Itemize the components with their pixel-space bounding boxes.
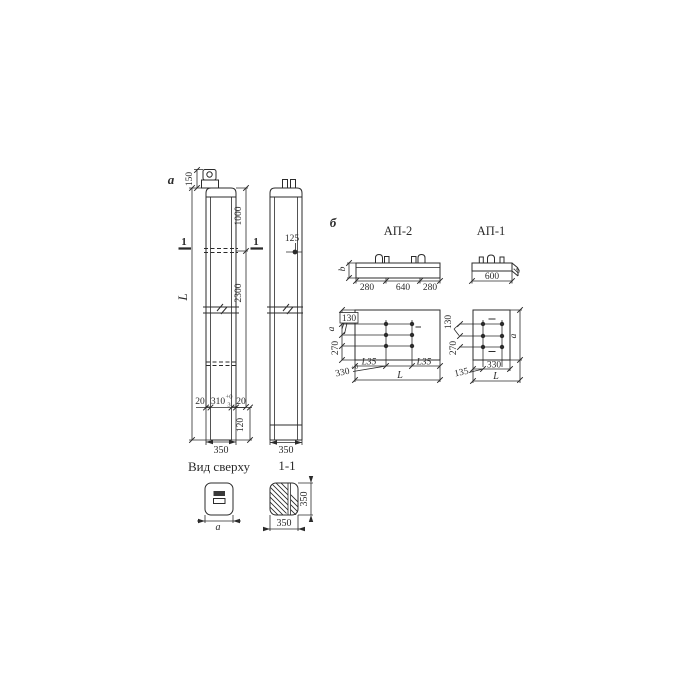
ap1-dim-600: 600 xyxy=(485,272,500,282)
ap2-elevation: b 280 640 280 xyxy=(338,255,443,294)
ap2-dim-b: b xyxy=(338,266,348,271)
ap2-plan-dim-a: a xyxy=(327,326,337,331)
ap2-dim-640: 640 xyxy=(396,283,411,293)
ap2-plate xyxy=(356,263,440,278)
dim-120: 120 xyxy=(236,418,246,433)
ap1-plan-dim-130: 130 xyxy=(444,315,454,330)
anchor-plate-details: б АП-2 АП-1 b 280 640 280 xyxy=(327,215,523,384)
ap2-stub-left xyxy=(385,257,390,264)
ap2-plan-angle-right: L35 xyxy=(416,358,432,368)
ap2-plan: 130 a 270 330 +0 L35 L35 L xyxy=(327,307,443,383)
drawing-canvas: a 150 1000 2300 L 1 1 20 310 +0 3 20 120… xyxy=(0,0,700,700)
ap2-plan-dim-330: 330 xyxy=(335,367,351,380)
eye-slot-top xyxy=(214,491,226,496)
ap1-stub-left xyxy=(479,257,483,263)
dim-20-right: 20 xyxy=(236,397,246,407)
dim-310-tolerance-sub: 3 xyxy=(227,402,230,409)
top-stud-right xyxy=(291,180,296,189)
dim-310-tolerance-sup: +0 xyxy=(226,394,233,401)
column-front-view: a 150 1000 2300 L 1 1 20 310 +0 3 20 120… xyxy=(168,167,263,456)
dim-1000: 1000 xyxy=(234,206,244,225)
ap1-plan-dim-330: 330 xyxy=(487,361,502,371)
dim-350-section-bottom: 350 xyxy=(277,518,292,529)
ap1-plan-dim-L: L xyxy=(492,371,499,382)
ap1-plan-dim-a: a xyxy=(509,333,519,338)
ap2-title: АП-2 xyxy=(384,224,412,238)
dim-350-section-right: 350 xyxy=(299,492,310,507)
dim-350-front: 350 xyxy=(214,445,229,456)
top-view-title: Вид сверху xyxy=(188,459,251,474)
ap1-plan: 130 270 135 330 L a xyxy=(444,307,523,384)
section-mark-right: 1 xyxy=(253,236,259,248)
dim-310: 310 xyxy=(211,397,226,407)
ap2-plan-dim-330-sup: +0 xyxy=(351,363,359,371)
ap1-title: АП-1 xyxy=(477,224,505,238)
section-mark-left: 1 xyxy=(181,236,187,248)
ap2-bolt-left xyxy=(376,255,383,264)
ap1-plan-dim-135: 135 xyxy=(454,367,470,380)
ap1-stub-right xyxy=(500,257,504,263)
top-view: Вид сверху a xyxy=(188,459,251,533)
lifting-eye xyxy=(203,170,216,181)
ap2-plan-dim-270: 270 xyxy=(331,341,341,356)
ap1-bolt-center xyxy=(488,255,495,263)
dim-350-side: 350 xyxy=(279,445,294,456)
dim-20-left: 20 xyxy=(195,397,205,407)
section-outline xyxy=(270,483,298,515)
view-marker-b: б xyxy=(330,215,337,230)
section-view-1-1: 1-1 350 350 xyxy=(238,458,328,531)
dim-125: 125 xyxy=(285,234,300,244)
lifting-eye-hole xyxy=(207,172,212,177)
ap1-plan-dim-270: 270 xyxy=(449,341,459,356)
eye-slot-bottom xyxy=(214,499,226,504)
column-side-view: 125 350 xyxy=(267,180,303,457)
technical-drawing: a 150 1000 2300 L 1 1 20 310 +0 3 20 120… xyxy=(0,0,700,700)
section-hatch-left xyxy=(238,480,328,520)
ap2-plan-angle-left: L35 xyxy=(361,358,377,368)
dim-a-top-view: a xyxy=(216,522,221,533)
dim-L-column: L xyxy=(175,293,190,301)
ap1-plate xyxy=(472,263,512,271)
view-marker-a: a xyxy=(168,172,175,187)
ap2-plan-dim-130: 130 xyxy=(342,314,357,324)
dim-150: 150 xyxy=(185,172,195,187)
ap1-plan-plate xyxy=(473,310,510,360)
ap2-bolt-right xyxy=(418,255,425,264)
lifting-eye-neck xyxy=(202,180,219,188)
section-title: 1-1 xyxy=(278,458,295,473)
ap2-dim-280-right: 280 xyxy=(423,283,438,293)
ap2-stub-right xyxy=(412,257,417,264)
dim-2300: 2300 xyxy=(234,283,244,302)
ap2-dim-280-left: 280 xyxy=(360,283,375,293)
ap2-plan-dim-L: L xyxy=(396,370,403,381)
ap1-elevation: 600 b xyxy=(469,255,523,284)
top-stud-left xyxy=(283,180,288,189)
